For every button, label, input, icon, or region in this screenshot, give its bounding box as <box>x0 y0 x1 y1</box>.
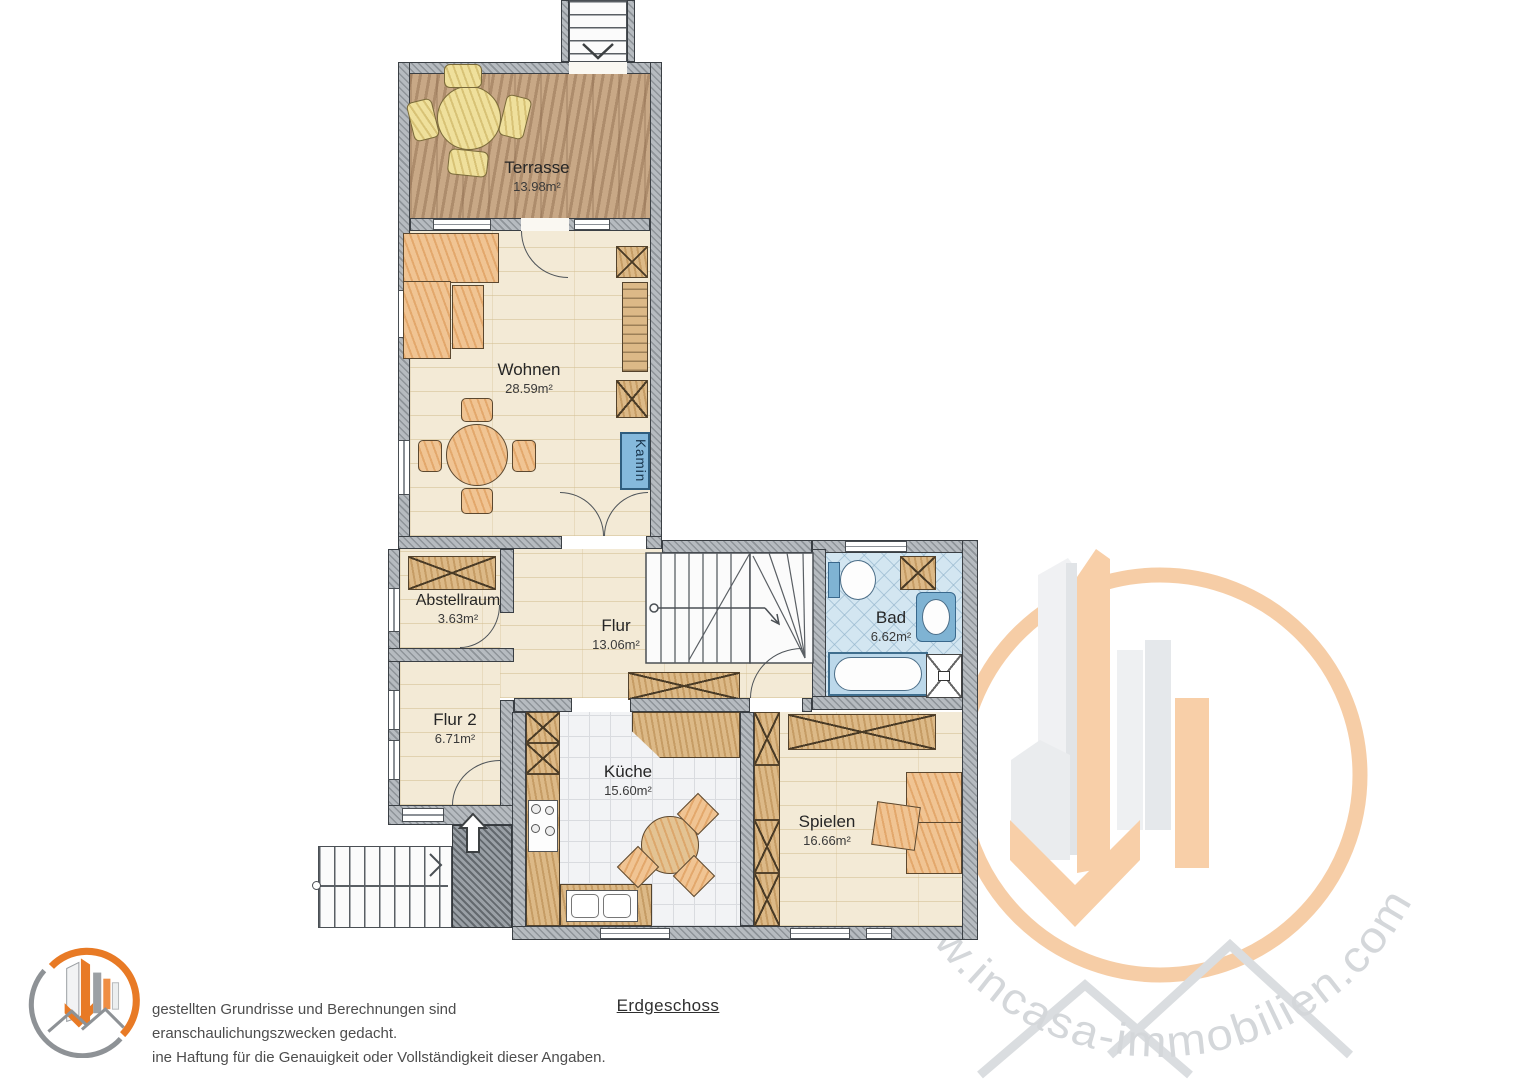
wall-segment <box>650 62 662 549</box>
terrasse-chair <box>444 64 482 88</box>
room-label-wohnen: Wohnen 28.59m² <box>497 360 560 396</box>
dining-chair <box>512 440 536 472</box>
logo-building-orange-small <box>103 979 110 1010</box>
stove-burner <box>545 806 554 815</box>
logo-building-gray <box>93 973 101 1014</box>
kamin-label: Kamin <box>620 432 650 490</box>
stairs-down-arrow-icon <box>581 42 615 62</box>
window <box>845 541 907 552</box>
flur-sideboard <box>628 672 740 700</box>
disclaimer-line: gestellten Grundrisse und Berechnungen s… <box>152 998 752 1022</box>
room-label-flur: Flur 13.06m² <box>592 616 640 652</box>
toilet-tank <box>828 562 840 598</box>
room-label-spielen: Spielen 16.66m² <box>799 812 856 848</box>
wall-segment <box>561 0 569 62</box>
wall-segment <box>740 712 754 926</box>
wall-segment <box>802 698 812 712</box>
wall-segment <box>398 536 562 549</box>
window <box>790 928 850 939</box>
wall-segment <box>627 0 635 62</box>
sink-basin-left <box>571 894 599 918</box>
stairs-rail-post <box>312 881 321 890</box>
terrasse-chair <box>447 148 489 178</box>
wall-segment <box>388 648 514 662</box>
wohnen-chaise <box>452 285 484 349</box>
room-label-abstellraum: Abstellraum 3.63m² <box>416 592 500 626</box>
window <box>574 219 610 230</box>
sink-basin <box>922 599 950 635</box>
stairs-direction-chevron-icon <box>428 852 444 878</box>
dining-table <box>446 424 508 486</box>
spielen-cabinet-column <box>754 820 780 873</box>
wohnen-sofa <box>403 281 451 359</box>
wall-segment <box>812 696 976 710</box>
stove-burner <box>531 804 541 814</box>
watermark-building-peach-right <box>1175 698 1209 868</box>
stove-burner <box>531 824 540 833</box>
spielen-cabinet-column <box>754 765 780 820</box>
wall-segment <box>630 698 750 712</box>
dining-chair <box>418 440 442 472</box>
disclaimer-text: gestellten Grundrisse und Berechnungen s… <box>152 998 752 1070</box>
room-name: Flur <box>592 616 640 636</box>
room-area: 16.66m² <box>799 833 856 848</box>
wall-segment <box>500 549 514 613</box>
watermark-building-gray-mid <box>1117 650 1143 830</box>
kueche-tall-cabinet <box>526 743 560 774</box>
spielen-cabinet-column <box>754 712 780 765</box>
room-name: Wohnen <box>497 360 560 380</box>
window <box>433 219 491 230</box>
wall-segment <box>512 712 526 940</box>
room-area: 13.98m² <box>504 179 569 194</box>
room-area: 13.06m² <box>592 637 640 652</box>
room-area: 15.60m² <box>604 783 652 798</box>
wall-segment <box>514 698 572 712</box>
wohnen-cabinet <box>616 246 648 278</box>
wohnen-cabinet <box>616 380 648 418</box>
window <box>600 928 670 939</box>
disclaimer-line: eranschaulichungszwecken gedacht. <box>152 1022 752 1046</box>
entrance-up-arrow-icon <box>458 812 488 854</box>
room-label-flur2: Flur 2 6.71m² <box>433 710 476 746</box>
room-name: Bad <box>871 608 911 628</box>
room-area: 6.62m² <box>871 629 911 644</box>
terrasse-door-gap <box>521 218 569 231</box>
abstellraum-cabinet <box>408 556 496 590</box>
spielen-cabinet-column <box>754 873 780 926</box>
window <box>866 928 892 939</box>
spielen-wardrobe <box>788 714 936 750</box>
terrasse-entry-gap <box>569 62 627 74</box>
wohnen-sofa <box>403 233 499 283</box>
window <box>388 588 400 632</box>
shower-drain-icon <box>938 671 950 681</box>
room-area: 3.63m² <box>416 611 500 626</box>
toilet-icon <box>840 560 876 600</box>
dining-chair <box>461 398 493 422</box>
window <box>388 690 400 730</box>
wohnen-sideboard <box>622 282 648 372</box>
kueche-tall-cabinet <box>526 712 560 743</box>
bad-cabinet <box>900 556 936 590</box>
watermark-building-peach-tall <box>1077 549 1110 873</box>
room-label-kueche: Küche 15.60m² <box>604 762 652 798</box>
logo-building-white <box>112 983 118 1009</box>
room-area: 6.71m² <box>433 731 476 746</box>
spielen-side-table <box>871 801 921 851</box>
watermark-building-gray-mid2 <box>1145 640 1171 830</box>
sink-basin-right <box>603 894 631 918</box>
room-name: Spielen <box>799 812 856 832</box>
disclaimer-line: ine Haftung für die Genauigkeit oder Vol… <box>152 1046 752 1070</box>
room-name: Flur 2 <box>433 710 476 730</box>
room-name: Küche <box>604 762 652 782</box>
room-name: Abstellraum <box>416 592 500 610</box>
window <box>388 740 400 780</box>
floor-plan: www.incasa-immobilien.com Kamin <box>0 0 1527 1080</box>
room-name: Terrasse <box>504 158 569 178</box>
bathtub-inner <box>834 657 922 691</box>
room-label-terrasse: Terrasse 13.98m² <box>504 158 569 194</box>
wall-segment <box>512 926 978 940</box>
stove-burner <box>545 826 555 836</box>
terrasse-table <box>437 86 501 150</box>
room-label-bad: Bad 6.62m² <box>871 608 911 644</box>
stairs-rail <box>318 885 448 887</box>
window <box>398 440 410 495</box>
room-area: 28.59m² <box>497 381 560 396</box>
wall-segment <box>646 536 662 549</box>
dining-chair <box>461 488 493 514</box>
window <box>402 808 444 822</box>
wall-segment <box>962 540 978 940</box>
incasa-logo <box>26 938 146 1058</box>
